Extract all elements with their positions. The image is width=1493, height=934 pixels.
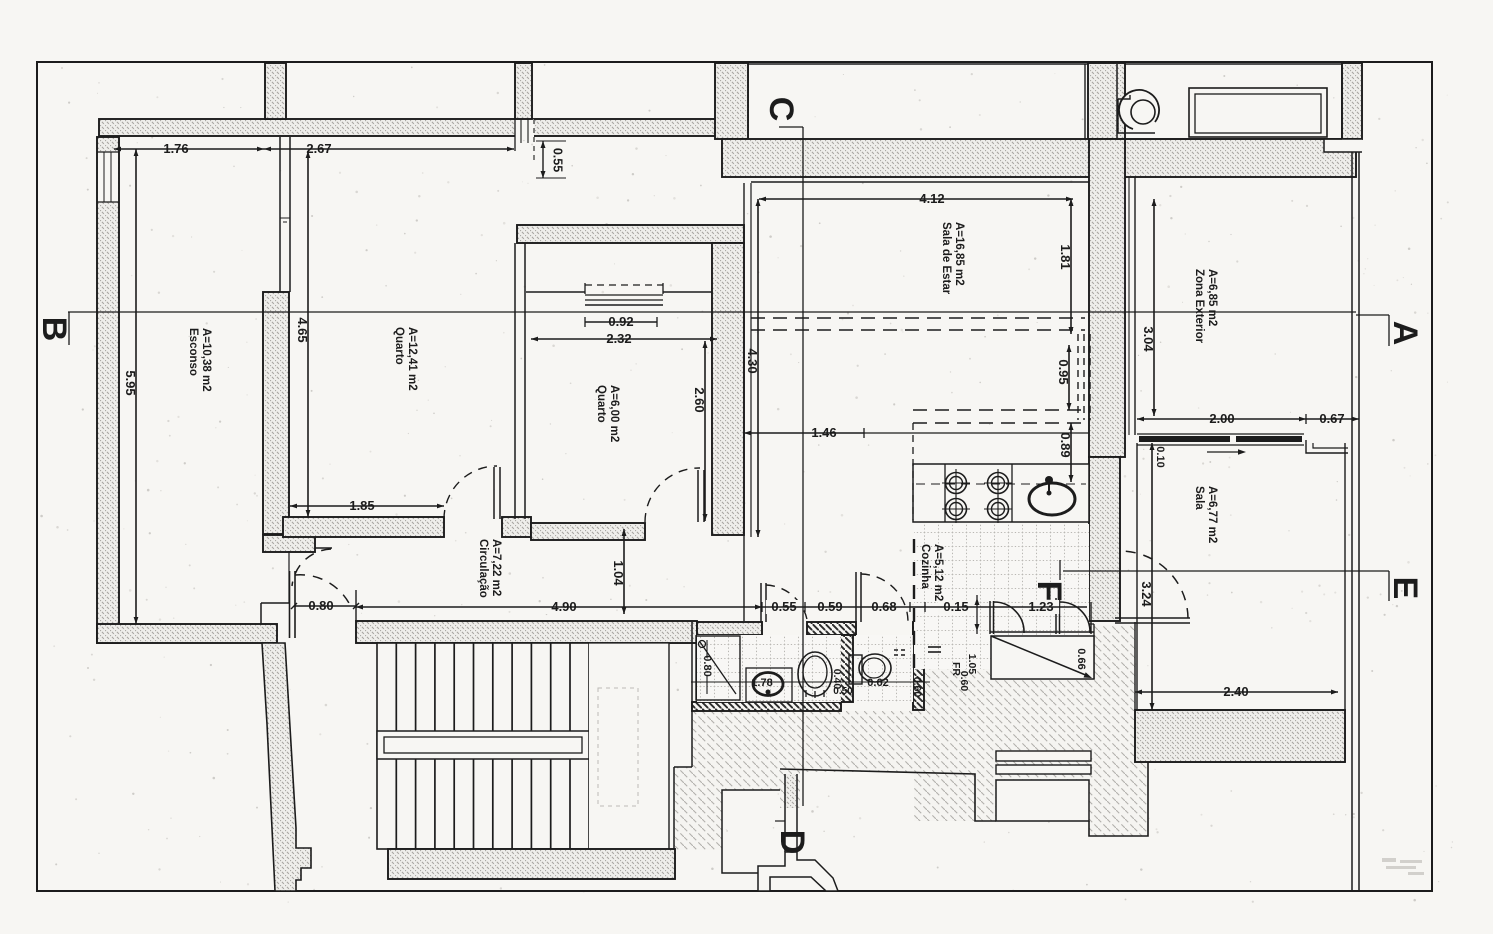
svg-text:A=16,85 m2: A=16,85 m2 xyxy=(953,222,965,286)
svg-text:Quarto: Quarto xyxy=(393,327,405,365)
svg-text:0.89: 0.89 xyxy=(1058,432,1073,457)
svg-text:1.78: 1.78 xyxy=(751,677,772,689)
svg-text:2.67: 2.67 xyxy=(306,141,331,156)
svg-text:0.62: 0.62 xyxy=(867,677,888,689)
svg-text:Quarto: Quarto xyxy=(595,385,607,423)
svg-text:1.81: 1.81 xyxy=(1058,244,1073,269)
svg-text:A=7,22 m2: A=7,22 m2 xyxy=(490,539,502,596)
svg-text:0.50: 0.50 xyxy=(833,686,853,697)
svg-text:A=5,12 m2: A=5,12 m2 xyxy=(932,544,944,601)
svg-text:E: E xyxy=(1386,577,1424,600)
svg-text:A: A xyxy=(1386,321,1424,346)
svg-text:4.30: 4.30 xyxy=(745,348,760,373)
svg-text:1.05: 1.05 xyxy=(966,654,978,675)
svg-text:0.80: 0.80 xyxy=(701,655,713,676)
svg-text:1.04: 1.04 xyxy=(611,560,626,586)
svg-text:3.24: 3.24 xyxy=(1139,581,1154,607)
svg-text:2.60: 2.60 xyxy=(692,387,707,412)
svg-text:Cozinha: Cozinha xyxy=(919,544,931,589)
svg-text:0.55: 0.55 xyxy=(551,148,565,172)
svg-text:Sala de Estar: Sala de Estar xyxy=(940,222,952,295)
svg-text:0.10: 0.10 xyxy=(1154,446,1166,467)
svg-text:Circulação: Circulação xyxy=(477,539,489,598)
svg-text:3.04: 3.04 xyxy=(1141,326,1156,352)
svg-text:A=6,00 m2: A=6,00 m2 xyxy=(608,385,620,442)
svg-text:0.60: 0.60 xyxy=(911,677,923,698)
svg-text:0.55: 0.55 xyxy=(771,599,796,614)
svg-text:1.23: 1.23 xyxy=(1028,599,1053,614)
svg-text:0.59: 0.59 xyxy=(817,599,842,614)
svg-text:2.00: 2.00 xyxy=(1209,411,1234,426)
svg-text:2.32: 2.32 xyxy=(606,331,631,346)
svg-text:0.68: 0.68 xyxy=(871,599,896,614)
svg-text:0.92: 0.92 xyxy=(608,314,633,329)
svg-text:A=10,38 m2: A=10,38 m2 xyxy=(200,328,212,392)
svg-text:D: D xyxy=(773,830,811,855)
svg-text:Zona Exterior: Zona Exterior xyxy=(1193,269,1205,344)
svg-text:1.46: 1.46 xyxy=(811,425,836,440)
svg-text:0.95: 0.95 xyxy=(1056,359,1071,384)
svg-text:A=6,77 m2: A=6,77 m2 xyxy=(1206,486,1218,543)
svg-text:0.67: 0.67 xyxy=(1319,411,1344,426)
svg-text:C: C xyxy=(762,97,800,122)
svg-text:Esconso: Esconso xyxy=(187,328,199,376)
svg-text:Sala: Sala xyxy=(1193,486,1205,510)
svg-text:0.80: 0.80 xyxy=(308,598,333,613)
svg-text:4.65: 4.65 xyxy=(295,317,310,342)
svg-text:1.76: 1.76 xyxy=(163,141,188,156)
svg-text:A=12,41 m2: A=12,41 m2 xyxy=(406,327,418,391)
svg-text:1.85: 1.85 xyxy=(349,498,374,513)
svg-text:4.90: 4.90 xyxy=(551,599,576,614)
svg-text:5.95: 5.95 xyxy=(123,370,138,395)
svg-text:4.12: 4.12 xyxy=(919,191,944,206)
svg-text:2.40: 2.40 xyxy=(1223,684,1248,699)
svg-text:A=6,85 m2: A=6,85 m2 xyxy=(1206,269,1218,326)
svg-text:B: B xyxy=(35,317,73,342)
svg-text:0.66: 0.66 xyxy=(1075,648,1087,669)
